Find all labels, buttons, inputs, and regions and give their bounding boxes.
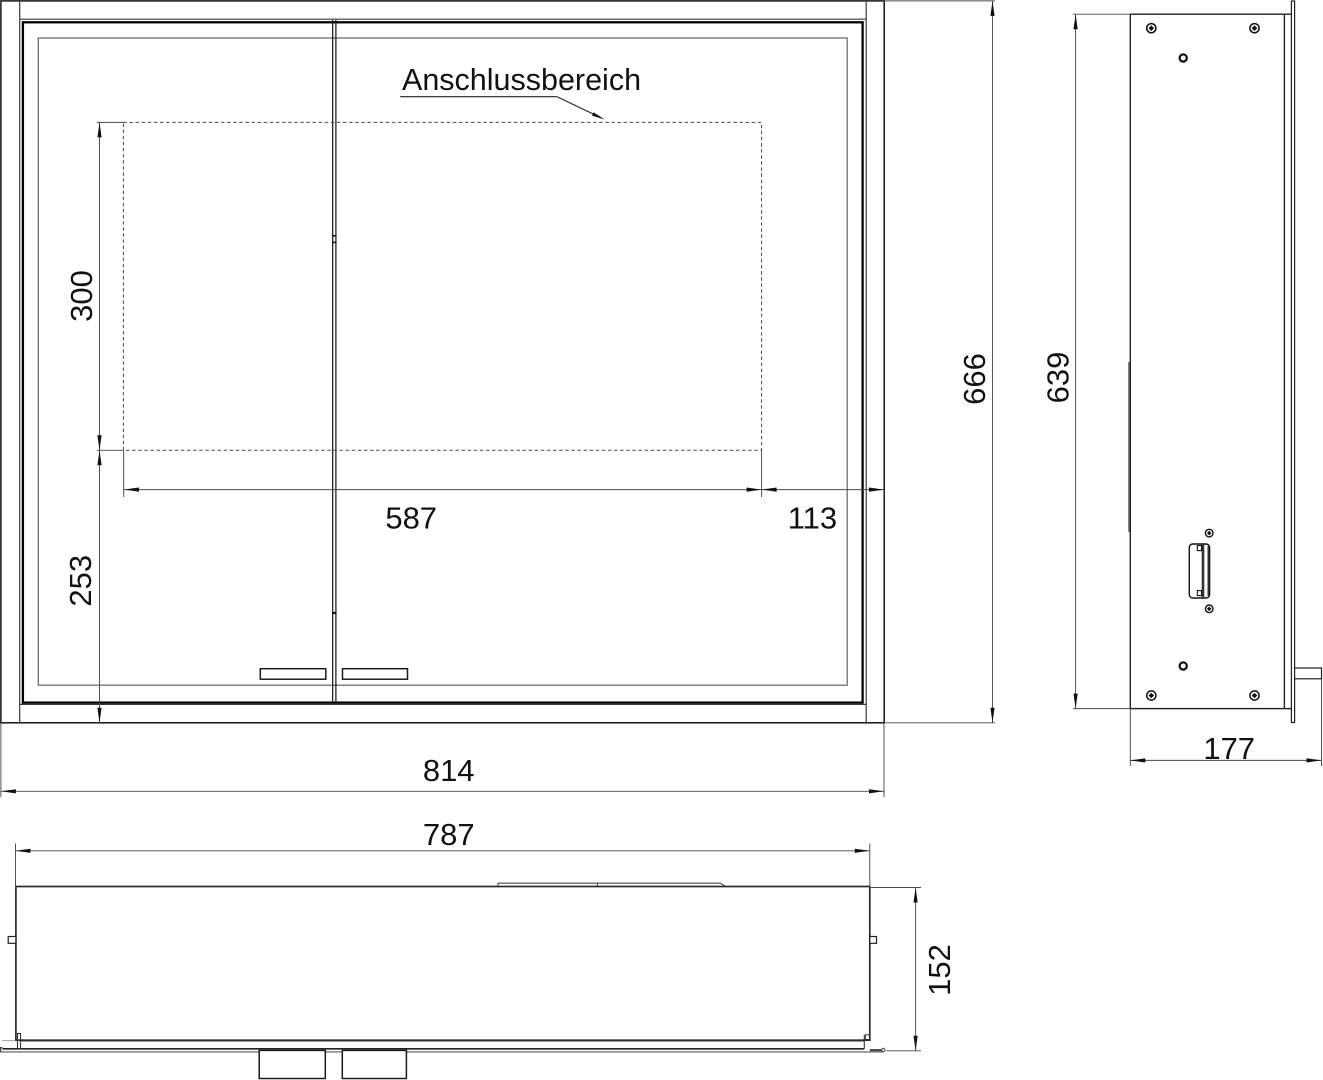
svg-text:639: 639 bbox=[1041, 352, 1076, 404]
svg-text:814: 814 bbox=[423, 753, 475, 788]
svg-text:587: 587 bbox=[385, 501, 437, 536]
svg-text:787: 787 bbox=[423, 817, 475, 852]
svg-text:666: 666 bbox=[957, 353, 992, 405]
svg-text:113: 113 bbox=[788, 501, 837, 536]
svg-text:253: 253 bbox=[63, 555, 98, 607]
svg-text:177: 177 bbox=[1203, 731, 1255, 766]
svg-text:300: 300 bbox=[64, 270, 99, 322]
svg-text:152: 152 bbox=[922, 944, 957, 996]
svg-text:Anschlussbereich: Anschlussbereich bbox=[402, 63, 641, 97]
